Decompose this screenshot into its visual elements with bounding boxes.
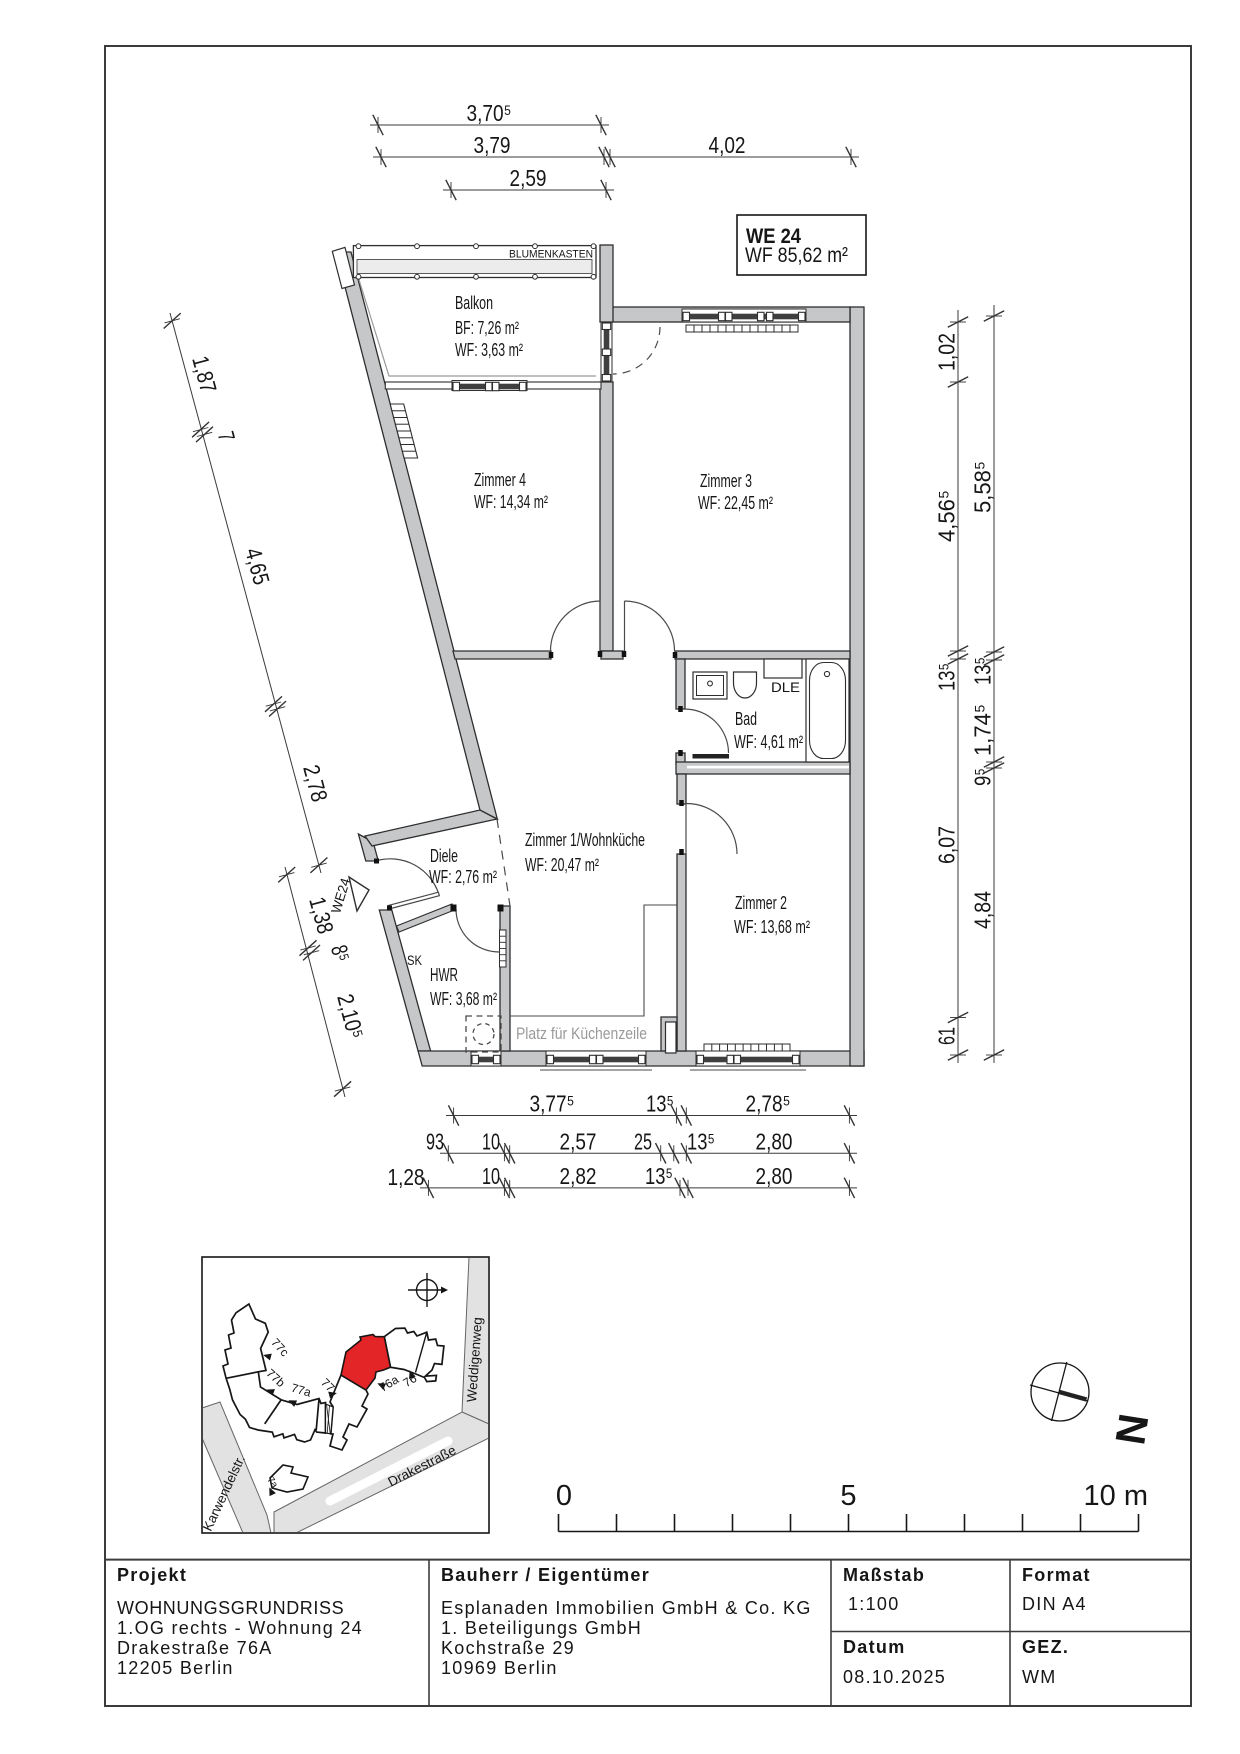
svg-text:BLUMENKASTEN: BLUMENKASTEN	[509, 249, 593, 261]
svg-text:Zimmer 2: Zimmer 2	[735, 893, 787, 913]
svg-text:WF: 3,68 m²: WF: 3,68 m²	[430, 989, 497, 1009]
svg-text:Esplanaden Immobilien GmbH & C: Esplanaden Immobilien GmbH & Co. KG	[441, 1598, 812, 1618]
svg-text:13⁵: 13⁵	[687, 1129, 715, 1155]
svg-text:10969 Berlin: 10969 Berlin	[441, 1658, 558, 1678]
svg-text:61: 61	[934, 1027, 960, 1045]
svg-text:3,70⁵: 3,70⁵	[467, 100, 512, 126]
svg-text:Zimmer 1/Wohnküche: Zimmer 1/Wohnküche	[525, 830, 645, 850]
svg-text:Zimmer 3: Zimmer 3	[700, 471, 752, 491]
svg-text:WF: 4,61 m²: WF: 4,61 m²	[734, 732, 803, 752]
svg-text:1.OG rechts - Wohnung 24: 1.OG rechts - Wohnung 24	[117, 1618, 363, 1638]
svg-text:6,07: 6,07	[934, 826, 960, 864]
svg-text:WF: 3,63 m²: WF: 3,63 m²	[455, 340, 523, 360]
svg-text:1,74⁵: 1,74⁵	[970, 704, 996, 756]
svg-text:Diele: Diele	[430, 846, 458, 866]
svg-text:WF: 20,47 m²: WF: 20,47 m²	[525, 855, 599, 875]
svg-text:Format: Format	[1022, 1565, 1091, 1585]
svg-text:WF: 2,76 m²: WF: 2,76 m²	[429, 867, 497, 887]
svg-text:DLE: DLE	[771, 679, 800, 695]
svg-text:12205 Berlin: 12205 Berlin	[117, 1658, 234, 1678]
svg-text:2,82: 2,82	[560, 1163, 597, 1189]
svg-text:13⁵: 13⁵	[970, 657, 996, 685]
svg-text:WF: 14,34 m²: WF: 14,34 m²	[474, 492, 548, 512]
svg-text:2,78⁵: 2,78⁵	[746, 1091, 791, 1117]
svg-text:1. Beteiligungs GmbH: 1. Beteiligungs GmbH	[441, 1618, 642, 1638]
svg-text:4,56⁵: 4,56⁵	[934, 490, 960, 542]
svg-text:13⁵: 13⁵	[645, 1163, 673, 1189]
svg-text:4,84: 4,84	[970, 891, 996, 929]
svg-text:25: 25	[634, 1129, 652, 1155]
svg-text:Drakestraße 76A: Drakestraße 76A	[117, 1638, 273, 1658]
svg-text:Bad: Bad	[735, 709, 757, 729]
svg-text:2,80: 2,80	[756, 1129, 793, 1155]
svg-text:HWR: HWR	[430, 965, 458, 985]
svg-text:Bauherr / Eigentümer: Bauherr / Eigentümer	[441, 1565, 650, 1585]
svg-text:0: 0	[556, 1480, 572, 1512]
svg-text:WOHNUNGSGRUNDRISS: WOHNUNGSGRUNDRISS	[117, 1598, 344, 1618]
svg-text:WF: 13,68 m²: WF: 13,68 m²	[734, 917, 810, 937]
svg-text:3,79: 3,79	[474, 132, 511, 158]
svg-text:93: 93	[426, 1129, 444, 1155]
svg-text:10: 10	[482, 1163, 500, 1189]
svg-text:WM: WM	[1022, 1667, 1057, 1687]
svg-text:Zimmer 4: Zimmer 4	[474, 470, 526, 490]
svg-text:1:100: 1:100	[848, 1594, 900, 1614]
svg-text:SK: SK	[407, 952, 423, 968]
svg-text:13⁵: 13⁵	[934, 663, 960, 691]
svg-text:4,02: 4,02	[709, 132, 746, 158]
svg-text:1,28: 1,28	[388, 1164, 425, 1190]
svg-text:5: 5	[840, 1480, 856, 1512]
svg-text:13⁵: 13⁵	[646, 1091, 674, 1117]
svg-text:2,59: 2,59	[510, 165, 547, 191]
svg-text:5,58⁵: 5,58⁵	[970, 461, 996, 513]
svg-text:10 m: 10 m	[1084, 1480, 1148, 1512]
svg-text:Balkon: Balkon	[455, 293, 493, 313]
svg-text:Platz für Küchenzeile: Platz für Küchenzeile	[516, 1024, 647, 1043]
svg-text:WF: 22,45 m²: WF: 22,45 m²	[698, 493, 773, 513]
svg-text:9⁵: 9⁵	[970, 768, 996, 786]
svg-text:WF 85,62 m²: WF 85,62 m²	[745, 244, 848, 267]
svg-text:Projekt: Projekt	[117, 1565, 187, 1585]
svg-text:DIN A4: DIN A4	[1022, 1594, 1087, 1614]
svg-text:3,77⁵: 3,77⁵	[530, 1091, 575, 1117]
svg-text:Datum: Datum	[843, 1637, 906, 1657]
svg-text:2,80: 2,80	[756, 1163, 793, 1189]
svg-text:1,02: 1,02	[934, 333, 960, 371]
svg-text:2,57: 2,57	[560, 1129, 597, 1155]
svg-text:Maßstab: Maßstab	[843, 1565, 925, 1585]
svg-text:BF: 7,26 m²: BF: 7,26 m²	[455, 318, 519, 338]
svg-text:Kochstraße 29: Kochstraße 29	[441, 1638, 575, 1658]
svg-text:GEZ.: GEZ.	[1022, 1637, 1069, 1657]
svg-text:10: 10	[482, 1129, 500, 1155]
svg-text:08.10.2025: 08.10.2025	[843, 1667, 946, 1687]
